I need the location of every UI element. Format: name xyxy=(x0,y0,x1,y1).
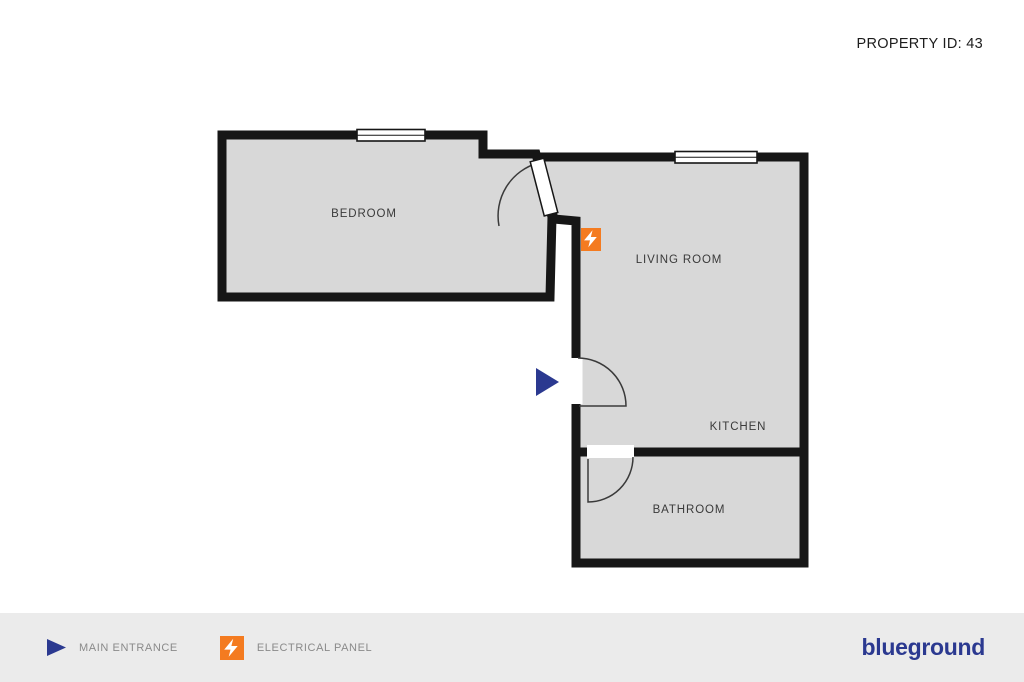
legend-item-electrical-panel: ELECTRICAL PANEL xyxy=(220,636,372,660)
room-label-kitchen: KITCHEN xyxy=(710,421,767,433)
floor-plan-page: PROPERTY ID: 43 xyxy=(0,0,1024,682)
room-label-living-room: LIVING ROOM xyxy=(636,254,723,266)
legend-item-main-entrance: MAIN ENTRANCE xyxy=(47,639,178,656)
door-opening-bathroom xyxy=(587,445,634,458)
main-entrance-arrow-icon xyxy=(536,368,559,396)
main-entrance-arrow-icon xyxy=(47,639,66,656)
legend-label-main-entrance: MAIN ENTRANCE xyxy=(79,642,178,654)
door-opening-main-entrance xyxy=(570,358,583,404)
window-living-room xyxy=(675,152,757,164)
brand-logo: blueground xyxy=(862,634,985,661)
electrical-panel-icon xyxy=(581,228,601,251)
room-label-bathroom: BATHROOM xyxy=(653,504,726,516)
room-label-bedroom: BEDROOM xyxy=(331,208,397,220)
legend-label-electrical-panel: ELECTRICAL PANEL xyxy=(257,642,372,654)
window-bedroom xyxy=(357,130,425,142)
legend-bar: MAIN ENTRANCE ELECTRICAL PANEL bluegroun… xyxy=(0,613,1024,682)
legend-items: MAIN ENTRANCE ELECTRICAL PANEL xyxy=(0,636,372,660)
electrical-panel-icon xyxy=(220,636,244,660)
floor-plan: BEDROOM LIVING ROOM KITCHEN BATHROOM xyxy=(0,0,1024,682)
